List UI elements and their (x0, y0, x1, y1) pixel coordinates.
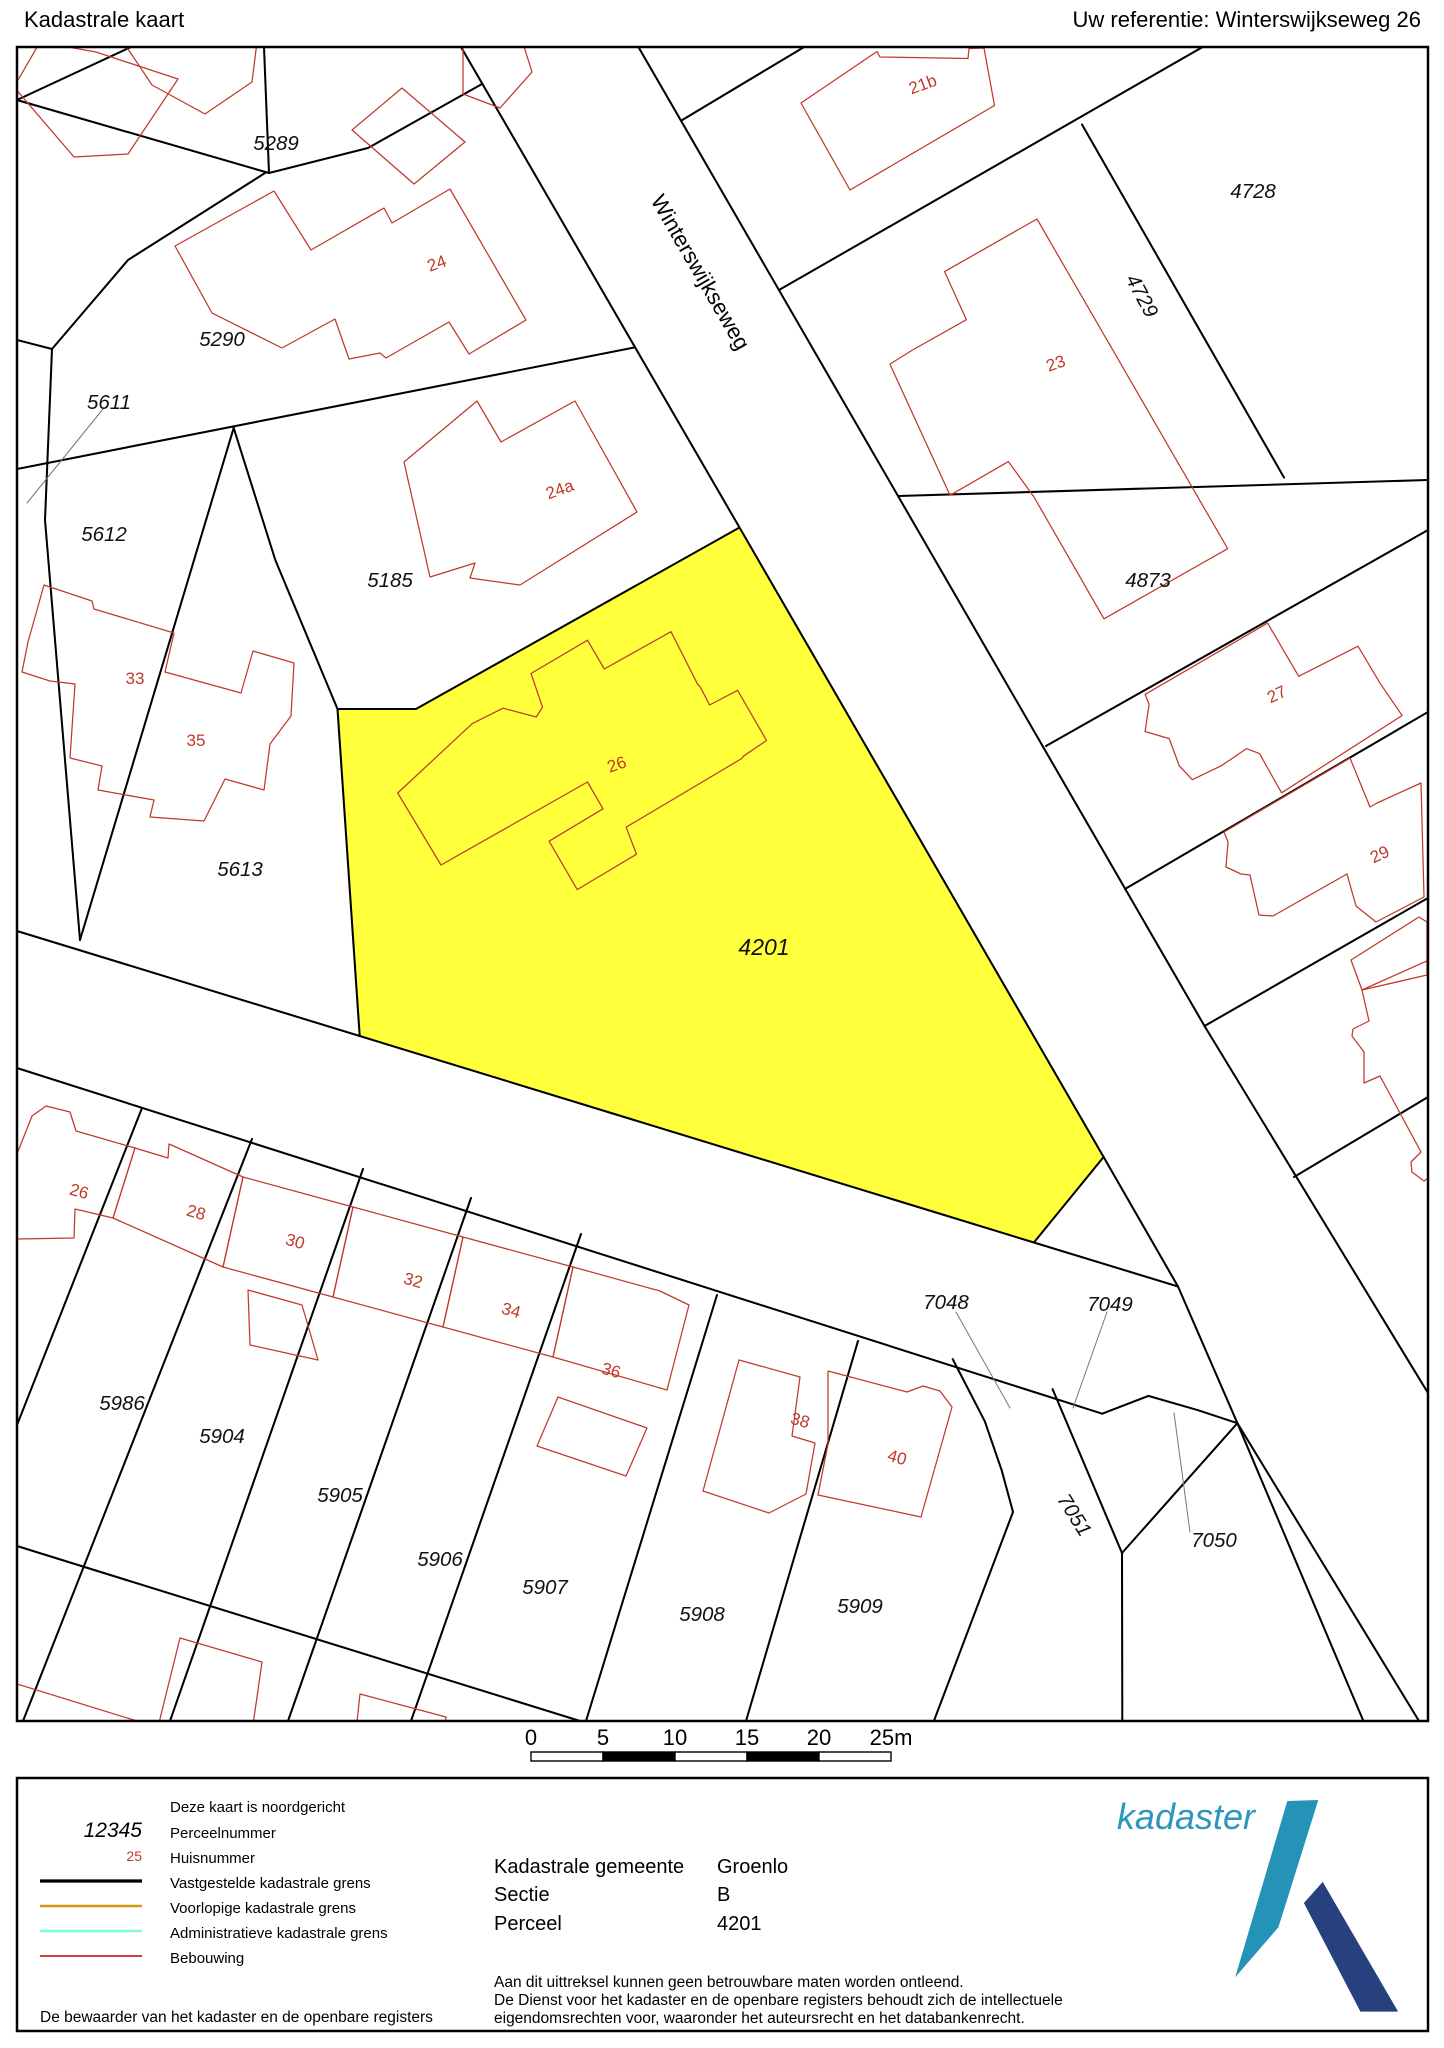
svg-text:38: 38 (788, 1409, 811, 1432)
svg-text:30: 30 (283, 1230, 306, 1253)
svg-text:32: 32 (401, 1269, 424, 1292)
svg-text:25m: 25m (870, 1725, 913, 1750)
svg-text:Kadastrale kaart: Kadastrale kaart (24, 7, 184, 32)
svg-text:Kadastrale gemeente: Kadastrale gemeente (494, 1856, 684, 1878)
svg-text:Bebouwing: Bebouwing (170, 1950, 244, 1967)
svg-text:Groenlo: Groenlo (717, 1856, 788, 1878)
svg-text:20: 20 (807, 1725, 831, 1750)
svg-text:B: B (717, 1884, 730, 1906)
svg-text:5611: 5611 (87, 391, 131, 414)
svg-text:29: 29 (1367, 842, 1392, 867)
svg-text:De Dienst voor het kadaster en: De Dienst voor het kadaster en de openba… (494, 1992, 1063, 2009)
svg-text:7051: 7051 (1052, 1490, 1096, 1541)
svg-text:27: 27 (1264, 682, 1289, 707)
svg-text:7049: 7049 (1087, 1293, 1133, 1316)
svg-text:5907: 5907 (522, 1576, 569, 1599)
svg-text:De bewaarder van het kadaster: De bewaarder van het kadaster en de open… (40, 2009, 433, 2026)
svg-text:Huisnummer: Huisnummer (170, 1850, 255, 1867)
svg-text:Vastgestelde kadastrale grens: Vastgestelde kadastrale grens (170, 1875, 371, 1892)
svg-text:4728: 4728 (1230, 180, 1276, 203)
svg-text:7048: 7048 (923, 1291, 969, 1314)
svg-text:21b: 21b (906, 71, 939, 99)
svg-text:Voorlopige kadastrale grens: Voorlopige kadastrale grens (170, 1900, 356, 1917)
svg-text:Uw referentie: Winterswijksewe: Uw referentie: Winterswijkseweg 26 (1073, 7, 1421, 32)
svg-text:23: 23 (1044, 351, 1068, 375)
svg-text:5904: 5904 (199, 1425, 245, 1448)
svg-text:Deze kaart is noordgericht: Deze kaart is noordgericht (170, 1799, 346, 1816)
svg-text:Perceelnummer: Perceelnummer (170, 1825, 276, 1842)
svg-text:12345: 12345 (84, 1819, 143, 1842)
svg-text:10: 10 (663, 1725, 687, 1750)
svg-text:5906: 5906 (417, 1548, 463, 1571)
svg-text:5986: 5986 (99, 1392, 145, 1415)
svg-text:Aan dit uittreksel kunnen geen: Aan dit uittreksel kunnen geen betrouwba… (494, 1974, 964, 1991)
svg-text:5612: 5612 (81, 523, 127, 546)
svg-text:Perceel: Perceel (494, 1913, 562, 1935)
svg-text:24a: 24a (543, 476, 577, 504)
svg-text:34: 34 (499, 1299, 522, 1322)
svg-text:0: 0 (525, 1725, 537, 1750)
svg-text:4873: 4873 (1125, 569, 1171, 592)
svg-text:Sectie: Sectie (494, 1884, 550, 1906)
svg-text:5: 5 (597, 1725, 609, 1750)
svg-text:4729: 4729 (1121, 270, 1163, 321)
svg-text:5613: 5613 (217, 858, 263, 881)
svg-text:7050: 7050 (1191, 1529, 1237, 1552)
svg-text:5290: 5290 (199, 328, 245, 351)
svg-text:25: 25 (126, 1848, 142, 1864)
svg-text:5185: 5185 (367, 569, 413, 592)
svg-text:5909: 5909 (837, 1595, 883, 1618)
svg-text:5905: 5905 (317, 1484, 363, 1507)
svg-text:Winterswijkseweg: Winterswijkseweg (646, 190, 755, 354)
svg-text:26: 26 (67, 1180, 90, 1203)
svg-text:Administratieve kadastrale gre: Administratieve kadastrale grens (170, 1925, 388, 1942)
svg-text:eigendomsrechten voor, waarond: eigendomsrechten voor, waaronder het aut… (494, 2010, 1025, 2027)
svg-text:28: 28 (184, 1201, 207, 1224)
svg-text:35: 35 (187, 731, 206, 750)
svg-text:24: 24 (425, 251, 449, 275)
svg-text:5908: 5908 (679, 1603, 725, 1626)
svg-text:4201: 4201 (717, 1913, 762, 1935)
svg-text:5289: 5289 (253, 132, 299, 155)
svg-text:36: 36 (599, 1359, 622, 1382)
svg-text:kadaster: kadaster (1117, 1796, 1257, 1837)
svg-text:4201: 4201 (738, 934, 789, 960)
svg-text:15: 15 (735, 1725, 759, 1750)
svg-text:33: 33 (126, 669, 145, 688)
svg-text:40: 40 (885, 1446, 908, 1469)
